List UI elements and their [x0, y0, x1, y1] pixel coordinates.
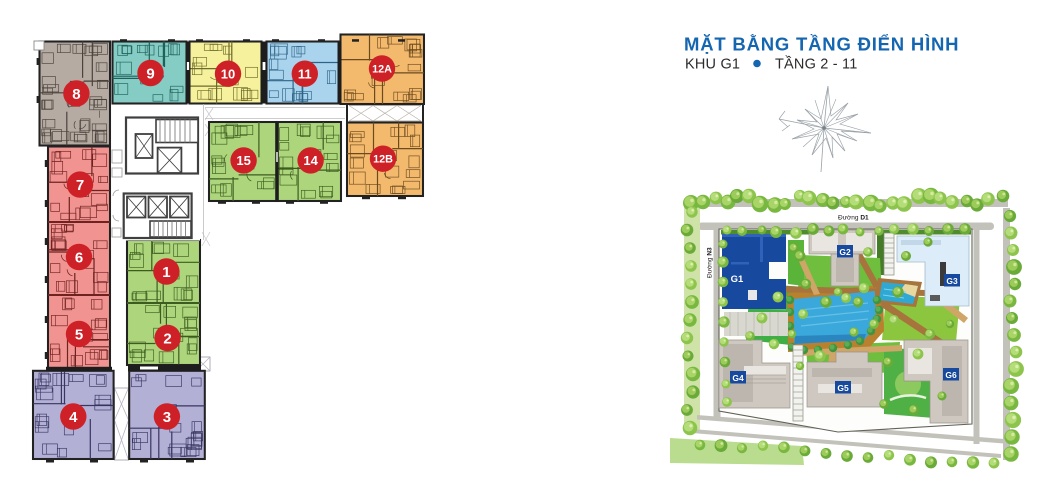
- svg-text:2: 2: [163, 330, 171, 347]
- svg-text:G2: G2: [839, 247, 851, 257]
- svg-text:14: 14: [303, 153, 318, 168]
- svg-text:3: 3: [163, 409, 171, 426]
- svg-text:G1: G1: [731, 274, 744, 285]
- svg-text:G3: G3: [946, 276, 958, 286]
- svg-text:G4: G4: [732, 373, 744, 383]
- svg-text:5: 5: [75, 326, 83, 343]
- svg-text:6: 6: [75, 249, 83, 266]
- svg-text:4: 4: [69, 409, 78, 426]
- svg-text:10: 10: [221, 66, 235, 81]
- svg-text:12A: 12A: [372, 63, 392, 75]
- svg-text:G5: G5: [837, 383, 849, 393]
- svg-text:1: 1: [162, 264, 170, 281]
- svg-text:11: 11: [298, 66, 312, 81]
- svg-text:8: 8: [72, 86, 80, 103]
- svg-text:TẦNG 2 - 11: TẦNG 2 - 11: [775, 56, 858, 73]
- svg-text:G6: G6: [945, 370, 957, 380]
- svg-text:7: 7: [76, 177, 84, 194]
- svg-text:MẶT BẰNG TẦNG ĐIỂN HÌNH: MẶT BẰNG TẦNG ĐIỂN HÌNH: [684, 34, 959, 55]
- svg-text:15: 15: [236, 153, 250, 168]
- svg-text:Đường N3: Đường N3: [707, 247, 714, 278]
- svg-text:12B: 12B: [373, 154, 393, 166]
- svg-text:9: 9: [146, 65, 154, 82]
- svg-text:Đường D1: Đường D1: [838, 215, 869, 222]
- svg-text:KHU G1: KHU G1: [685, 57, 740, 73]
